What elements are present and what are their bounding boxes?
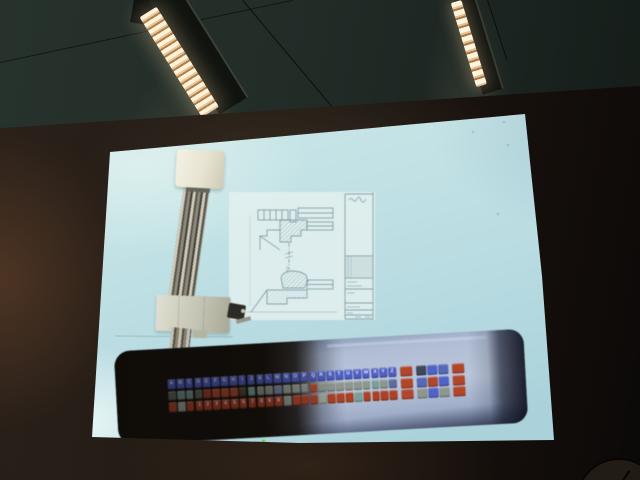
console-key: 6: [239, 398, 247, 408]
console-key: [274, 385, 282, 395]
console-key: [292, 395, 300, 405]
clock-hand: [612, 470, 631, 480]
console-key: F: [212, 377, 220, 387]
console-key: [256, 386, 264, 396]
console-key: [390, 390, 398, 400]
console-key: [337, 393, 345, 403]
console-key: [328, 393, 336, 403]
console-key: [438, 364, 449, 375]
lecture-room-photo: ABCDEFGHIJKLMNOPQRSTUVWXYZ·1234567890: [0, 0, 640, 480]
green-glint: [262, 440, 265, 442]
console-key: [381, 390, 389, 400]
console-key: [371, 379, 379, 389]
console-key: [186, 401, 194, 411]
console-key: [389, 378, 397, 388]
dust-speck: [472, 131, 474, 133]
console-key: C: [185, 378, 193, 388]
console-key: P: [300, 372, 308, 382]
console-key: [194, 389, 202, 399]
console-key: 5: [230, 399, 238, 409]
console-key: [292, 384, 300, 394]
console-key: [452, 363, 465, 374]
console-key: [186, 390, 194, 400]
console-key: [283, 384, 291, 394]
console-key: N: [282, 373, 290, 383]
console-key: Z: [388, 367, 396, 377]
console-key: [427, 364, 438, 375]
console-key: S: [326, 370, 334, 380]
plotter-head-block: [175, 149, 225, 189]
dust-speck: [503, 121, 505, 123]
console-key: 4: [222, 399, 230, 409]
console-key: [362, 380, 370, 390]
console-key: [417, 377, 428, 388]
console-key: H: [229, 376, 237, 386]
console-key: T: [335, 370, 343, 380]
console-key: [327, 382, 335, 392]
console-key: [453, 386, 466, 397]
dust-speck: [497, 213, 499, 215]
console-key: D: [194, 378, 202, 388]
console-key: [203, 389, 211, 399]
console-key: [168, 391, 176, 401]
console-key: 2: [204, 400, 212, 410]
console-key: M: [273, 373, 281, 383]
console-key: [345, 392, 353, 402]
plotter-rails: [168, 183, 210, 301]
console-key: A: [167, 379, 175, 389]
console-key: E: [203, 377, 211, 387]
console-key: [283, 396, 291, 406]
console-key: [265, 385, 273, 395]
console-key: 7: [248, 398, 256, 408]
console-key: [428, 376, 439, 387]
console-key: [318, 382, 326, 392]
console-key: [380, 379, 388, 389]
console-key: U: [344, 369, 352, 379]
console-key: 3: [213, 400, 221, 410]
console-key: ·: [177, 402, 185, 412]
console-key: [301, 383, 309, 393]
console-key: [428, 387, 439, 398]
console-key: [354, 392, 362, 402]
console-key: 9: [266, 397, 274, 407]
ceiling-seam: [242, 0, 337, 113]
console-key: [309, 383, 317, 393]
pen-unit-knob: [241, 309, 245, 313]
plotter-carriage: [155, 295, 230, 334]
console-key: Y: [379, 367, 387, 377]
console-key: R: [318, 371, 326, 381]
console-key: [416, 365, 427, 376]
console-key: [401, 389, 414, 400]
console-key: 0: [275, 396, 283, 406]
carriage-foot: [193, 330, 207, 338]
console-key: [301, 395, 309, 405]
dust-speck: [507, 144, 509, 146]
console-key: [453, 374, 466, 385]
console-key: 8: [257, 397, 265, 407]
console-key: B: [176, 379, 184, 389]
console-key: [177, 390, 185, 400]
console-key: [239, 387, 247, 397]
drawing-sheet: [227, 186, 377, 326]
console-key: [417, 388, 428, 399]
console-key: O: [291, 372, 299, 382]
console-key: [439, 375, 450, 386]
console-key: [212, 388, 220, 398]
console-key: [363, 391, 371, 401]
console-key: [248, 386, 256, 396]
console-key: [319, 394, 327, 404]
console-key: V: [353, 369, 361, 379]
console-key: W: [362, 368, 370, 378]
console-key: L: [265, 374, 273, 384]
console-key: K: [256, 374, 264, 384]
console-key: [336, 381, 344, 391]
console-key: [372, 391, 380, 401]
console-key: [230, 387, 238, 397]
console-key: [221, 388, 229, 398]
console-key: G: [220, 376, 228, 386]
console-key: [310, 394, 318, 404]
console-key: X: [371, 368, 379, 378]
console-key: I: [238, 375, 246, 385]
console-key: 1: [195, 401, 203, 411]
console-key: J: [247, 375, 255, 385]
console-key: [169, 402, 177, 412]
console-key: [345, 381, 353, 391]
console-key: Q: [309, 371, 317, 381]
console-key: [354, 380, 362, 390]
console-key: [401, 377, 414, 388]
console-key: [400, 366, 413, 377]
console-key: [439, 387, 450, 398]
